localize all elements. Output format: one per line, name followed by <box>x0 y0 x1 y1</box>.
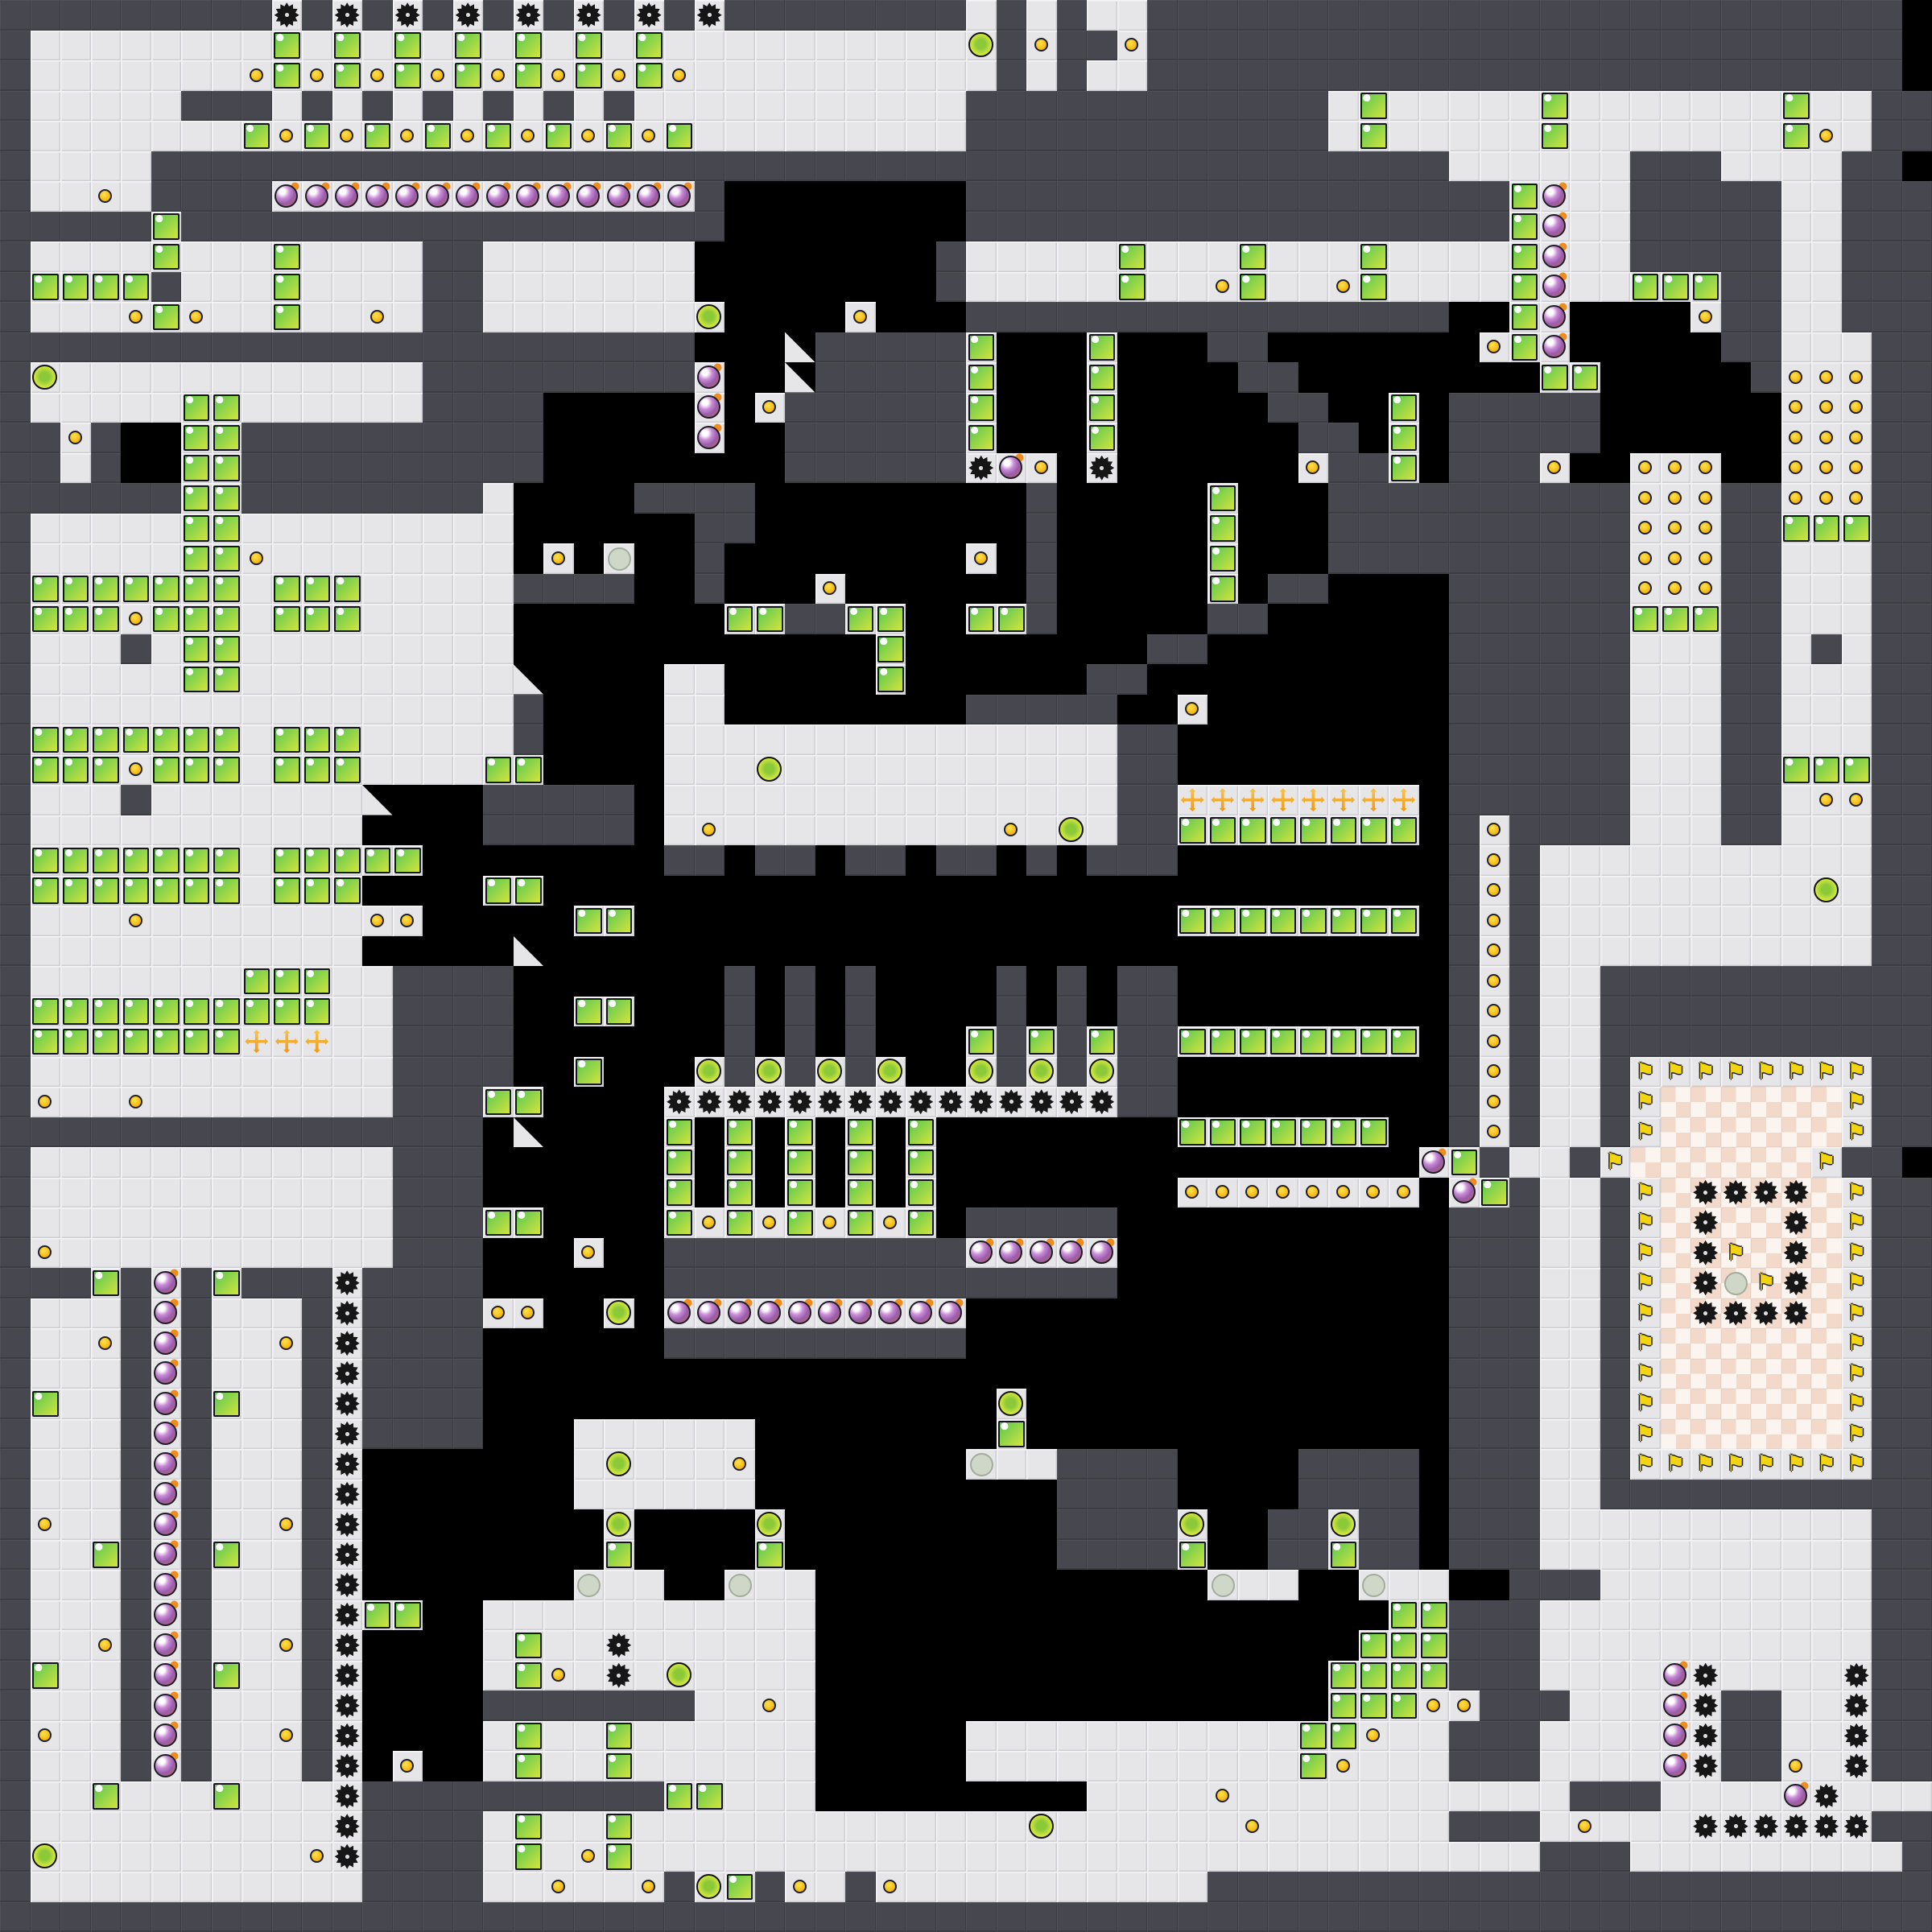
floor-tile <box>212 242 242 272</box>
floor-tile <box>785 1721 815 1752</box>
wall-tile <box>332 1117 363 1148</box>
wall-tile <box>1690 1480 1721 1510</box>
floor-tile <box>1661 1781 1691 1812</box>
green-block <box>1268 1026 1298 1057</box>
floor-tile <box>1570 242 1600 272</box>
green-block <box>91 1540 122 1571</box>
floor-tile <box>543 1751 574 1781</box>
floor-tile <box>1811 1721 1842 1752</box>
floor-tile <box>242 1872 272 1902</box>
wall-tile <box>1328 0 1359 31</box>
wall-tile <box>1359 181 1389 212</box>
floor-tile <box>1751 91 1781 122</box>
wall-tile <box>1872 543 1902 574</box>
wall-tile <box>997 0 1027 31</box>
coin-icon <box>755 1690 786 1721</box>
wall-tile <box>1600 543 1631 574</box>
wall-tile <box>604 212 634 242</box>
wall-tile <box>664 1268 695 1298</box>
floor-tile <box>1690 755 1721 786</box>
wall-tile <box>91 0 122 31</box>
wall-tile <box>151 181 182 212</box>
coin-icon <box>272 1328 303 1359</box>
wall-tile <box>1509 785 1540 815</box>
floor-tile <box>272 1057 303 1088</box>
wall-tile <box>181 1328 212 1359</box>
floor-tile <box>906 724 936 755</box>
floor-tile <box>121 181 151 212</box>
green-block <box>393 31 423 61</box>
coin-icon <box>362 302 393 332</box>
floor-tile <box>936 91 967 122</box>
floor-tile <box>1630 695 1661 725</box>
coin-icon <box>1781 483 1812 514</box>
floor-tile <box>1026 1842 1057 1872</box>
coin-icon <box>1781 453 1812 484</box>
floor-tile <box>785 785 815 815</box>
wall-tile <box>1147 121 1178 151</box>
checker-tile <box>1751 1117 1781 1148</box>
wall-tile <box>483 997 514 1027</box>
wall-tile <box>0 272 31 303</box>
wall-tile <box>1540 60 1571 91</box>
wall-tile <box>423 1298 453 1329</box>
floor-tile <box>91 31 122 61</box>
wall-tile <box>181 1268 212 1298</box>
wall-tile <box>1147 845 1178 876</box>
floor-tile <box>1751 1842 1781 1872</box>
wall-tile <box>1509 1449 1540 1480</box>
green-block <box>91 604 122 634</box>
floor-tile <box>1026 785 1057 815</box>
wall-tile <box>1057 181 1088 212</box>
floor-tile <box>1268 1570 1298 1600</box>
floor-tile <box>332 91 363 122</box>
wall-tile <box>1328 1902 1359 1932</box>
wall-tile <box>1872 91 1902 122</box>
floor-tile <box>1540 966 1571 997</box>
floor-tile <box>212 936 242 967</box>
floor-tile <box>724 1811 755 1842</box>
wall-tile <box>181 181 212 212</box>
floor-tile <box>815 31 846 61</box>
wall-tile <box>1026 574 1057 605</box>
floor-tile <box>242 1600 272 1631</box>
green-block <box>31 755 61 786</box>
coin-icon <box>514 1298 544 1329</box>
floor-tile <box>332 1087 363 1117</box>
wall-tile <box>966 91 997 122</box>
floor-tile <box>453 695 484 725</box>
floor-tile <box>60 906 91 936</box>
wall-tile <box>1207 181 1238 212</box>
wall-tile <box>0 1087 31 1117</box>
checker-tile <box>1811 1207 1842 1238</box>
floor-tile <box>876 31 906 61</box>
floor-tile <box>695 785 725 815</box>
floor-tile <box>1087 785 1117 815</box>
floor-tile <box>121 664 151 695</box>
wall-tile <box>1298 91 1329 122</box>
floor-tile <box>695 724 725 755</box>
floor-tile <box>785 1690 815 1721</box>
wall-tile <box>1902 332 1932 363</box>
saw-icon <box>997 1087 1027 1117</box>
saw-icon <box>332 1389 363 1419</box>
wall-tile <box>1600 966 1631 997</box>
wall-tile <box>1117 1902 1148 1932</box>
bomb-icon <box>815 1298 846 1329</box>
floor-tile <box>332 1147 363 1178</box>
coin-icon <box>1811 393 1842 423</box>
wall-tile <box>1842 272 1872 303</box>
green-block <box>1087 362 1117 393</box>
wall-tile <box>1509 755 1540 786</box>
green-block <box>272 574 303 605</box>
wall-tile <box>1872 1811 1902 1842</box>
floor-tile <box>724 1751 755 1781</box>
floor-tile <box>60 1178 91 1208</box>
wall-tile <box>1057 1207 1088 1238</box>
wall-tile <box>815 423 846 453</box>
floor-tile <box>1570 91 1600 122</box>
wall-tile <box>1147 151 1178 182</box>
floor-tile <box>483 1872 514 1902</box>
wall-tile <box>664 1902 695 1932</box>
wall-tile <box>1117 1480 1148 1510</box>
wall-tile <box>181 0 212 31</box>
coin-icon <box>393 121 423 151</box>
wall-tile <box>543 1902 574 1932</box>
floor-tile <box>695 1842 725 1872</box>
green-block <box>212 1268 242 1298</box>
wall-tile <box>1661 242 1691 272</box>
wall-tile <box>1268 1902 1298 1932</box>
floor-tile <box>1690 845 1721 876</box>
green-block <box>695 1781 725 1812</box>
wall-tile <box>0 604 31 634</box>
wall-tile <box>423 242 453 272</box>
wall-tile <box>1902 242 1932 272</box>
floor-tile <box>151 966 182 997</box>
green-block <box>604 997 634 1027</box>
saw-icon <box>876 1087 906 1117</box>
wall-tile <box>1902 1207 1932 1238</box>
wall-tile <box>1480 1480 1510 1510</box>
wall-tile <box>1480 1751 1510 1781</box>
bomb-icon <box>543 181 574 212</box>
coin-icon <box>1026 31 1057 61</box>
wall-tile <box>393 423 423 453</box>
floor-tile <box>121 1781 151 1812</box>
floor-tile <box>1328 1842 1359 1872</box>
wall-tile <box>815 1238 846 1269</box>
wall-tile <box>453 1298 484 1329</box>
green-block <box>60 997 91 1027</box>
wall-tile <box>815 1328 846 1359</box>
floor-tile <box>604 1872 634 1902</box>
floor-tile <box>1298 1781 1329 1812</box>
wall-tile <box>362 1117 393 1148</box>
floor-tile <box>242 1207 272 1238</box>
wall-tile <box>1721 60 1752 91</box>
wall-tile <box>1872 997 1902 1027</box>
wall-tile <box>423 453 453 484</box>
saw-icon <box>332 1328 363 1359</box>
move-cross-icon <box>1389 785 1419 815</box>
floor-tile <box>1690 1600 1721 1631</box>
level-map <box>0 0 1932 1932</box>
wall-tile <box>1751 242 1781 272</box>
wall-tile <box>1087 91 1117 122</box>
floor-tile <box>724 785 755 815</box>
wall-tile <box>302 1419 332 1450</box>
floor-tile <box>272 1419 303 1450</box>
green-block <box>212 483 242 514</box>
wall-tile <box>1842 212 1872 242</box>
bomb-icon <box>695 362 725 393</box>
floor-tile <box>242 1419 272 1450</box>
wall-tile <box>393 453 423 484</box>
floor-tile <box>815 1811 846 1842</box>
wall-tile <box>181 1600 212 1631</box>
green-block <box>423 121 453 151</box>
coin-icon <box>1630 574 1661 605</box>
wall-tile <box>0 453 31 484</box>
floor-tile <box>483 483 514 514</box>
coin-icon <box>1690 453 1721 484</box>
wall-tile <box>1811 1026 1842 1057</box>
wall-tile <box>1842 1872 1872 1902</box>
floor-tile <box>1540 1087 1571 1117</box>
wall-tile <box>1661 997 1691 1027</box>
green-block <box>845 1207 876 1238</box>
floor-tile <box>1661 1509 1691 1540</box>
floor-tile <box>1721 151 1752 182</box>
wall-tile <box>1057 1509 1088 1540</box>
green-block <box>181 997 212 1027</box>
wall-tile <box>1509 1661 1540 1691</box>
wall-tile <box>1268 574 1298 605</box>
wall-tile <box>1902 1751 1932 1781</box>
floor-tile <box>1811 543 1842 574</box>
floor-tile <box>31 1359 61 1389</box>
flag-icon <box>1600 1147 1631 1178</box>
wall-tile <box>1298 151 1329 182</box>
wall-tile <box>1057 91 1088 122</box>
green-block <box>212 1389 242 1419</box>
wall-tile <box>121 1721 151 1752</box>
coin-icon <box>393 906 423 936</box>
wall-tile <box>876 393 906 423</box>
coin-icon <box>1811 362 1842 393</box>
floor-tile <box>60 815 91 846</box>
bomb-icon <box>845 1298 876 1329</box>
floor-tile <box>755 1570 786 1600</box>
floor-tile <box>60 1600 91 1631</box>
wall-tile <box>574 785 605 815</box>
checker-tile <box>1721 1328 1752 1359</box>
wall-tile <box>362 1872 393 1902</box>
wall-tile <box>845 362 876 393</box>
wall-tile <box>1690 1026 1721 1057</box>
wall-tile <box>1449 1872 1480 1902</box>
floor-tile <box>1721 1540 1752 1571</box>
floor-tile <box>664 664 695 695</box>
wall-tile <box>423 1811 453 1842</box>
checker-tile <box>1811 1389 1842 1419</box>
wall-tile <box>1570 815 1600 846</box>
floor-tile <box>1570 272 1600 303</box>
green-block <box>483 1087 514 1117</box>
green-block <box>664 121 695 151</box>
floor-tile <box>60 60 91 91</box>
floor-tile <box>332 1238 363 1269</box>
coin-icon <box>91 181 122 212</box>
green-block <box>332 755 363 786</box>
coin-icon <box>724 1449 755 1480</box>
floor-tile <box>423 543 453 574</box>
floor-tile <box>1178 1721 1208 1752</box>
floor-tile <box>242 1238 272 1269</box>
wall-tile <box>272 212 303 242</box>
floor-tile <box>272 1811 303 1842</box>
wall-tile <box>1178 1902 1208 1932</box>
floor-tile <box>695 1661 725 1691</box>
wall-tile <box>1540 483 1571 514</box>
orb-icon <box>1328 1509 1359 1540</box>
green-block <box>785 1207 815 1238</box>
floor-tile <box>1842 1509 1872 1540</box>
wall-tile <box>1449 1207 1480 1238</box>
green-block <box>1238 272 1269 303</box>
floor-tile <box>212 1449 242 1480</box>
green-block <box>1298 1026 1329 1057</box>
saw-icon <box>332 1690 363 1721</box>
wall-tile <box>1480 393 1510 423</box>
wall-tile <box>1872 1147 1902 1178</box>
wall-tile <box>1359 0 1389 31</box>
wall-tile <box>121 332 151 363</box>
wall-tile <box>362 151 393 182</box>
wall-tile <box>1359 453 1389 484</box>
wall-tile <box>1751 574 1781 605</box>
wall-tile <box>906 393 936 423</box>
coin-icon <box>1207 272 1238 303</box>
floor-tile <box>1721 91 1752 122</box>
floor-tile <box>906 1811 936 1842</box>
wall-tile <box>1298 393 1329 423</box>
wall-tile <box>1207 1872 1238 1902</box>
floor-tile <box>1600 151 1631 182</box>
wall-tile <box>1509 1207 1540 1238</box>
wall-tile <box>1147 302 1178 332</box>
wall-tile <box>423 1902 453 1932</box>
green-block <box>785 1117 815 1148</box>
floor-tile <box>181 1178 212 1208</box>
wall-tile <box>724 1057 755 1088</box>
wall-tile <box>1509 1480 1540 1510</box>
wall-tile <box>1902 302 1932 332</box>
wall-tile <box>1117 1026 1148 1057</box>
wall-tile <box>31 453 61 484</box>
floor-tile <box>272 1781 303 1812</box>
floor-tile <box>393 393 423 423</box>
wall-tile <box>1570 60 1600 91</box>
wall-tile <box>876 1902 906 1932</box>
floor-tile <box>1540 876 1571 906</box>
green-block <box>543 121 574 151</box>
checker-tile <box>1721 1087 1752 1117</box>
floor-tile <box>151 60 182 91</box>
wall-tile <box>423 1268 453 1298</box>
wall-tile <box>1449 453 1480 484</box>
wall-tile <box>121 1117 151 1148</box>
wall-tile <box>1359 1872 1389 1902</box>
orb-icon <box>695 1057 725 1088</box>
floor-tile <box>91 1661 122 1691</box>
floor-tile <box>1238 1570 1269 1600</box>
floor-tile <box>695 1480 725 1510</box>
green-block <box>514 1811 544 1842</box>
wall-tile <box>664 845 695 876</box>
wall-tile <box>1509 1359 1540 1389</box>
wall-tile <box>60 1117 91 1148</box>
checker-tile <box>1661 1238 1691 1269</box>
wall-tile <box>604 1781 634 1812</box>
floor-tile <box>181 1087 212 1117</box>
green-block <box>785 1147 815 1178</box>
floor-tile <box>242 1781 272 1812</box>
green-block <box>906 1178 936 1208</box>
checker-tile <box>1721 1389 1752 1419</box>
wall-tile <box>1872 1449 1902 1480</box>
coin-icon <box>1480 332 1510 363</box>
green-block <box>91 876 122 906</box>
floor-tile <box>1540 1207 1571 1238</box>
green-block <box>1540 362 1571 393</box>
floor-tile <box>60 514 91 544</box>
wall-tile <box>1781 31 1812 61</box>
wall-tile <box>966 1268 997 1298</box>
floor-tile <box>1721 1781 1752 1812</box>
wall-tile <box>453 1238 484 1269</box>
floor-tile <box>31 1328 61 1359</box>
green-block <box>151 997 182 1027</box>
wall-tile <box>453 1057 484 1088</box>
saw-icon <box>393 0 423 31</box>
wall-tile <box>1872 1600 1902 1631</box>
wall-tile <box>362 1389 393 1419</box>
wall-tile <box>1721 1902 1752 1932</box>
green-block <box>785 1178 815 1208</box>
wall-tile <box>1480 724 1510 755</box>
green-block <box>181 755 212 786</box>
wall-tile <box>695 1268 725 1298</box>
wall-tile <box>724 1268 755 1298</box>
wall-tile <box>1751 1480 1781 1510</box>
wall-tile <box>121 1630 151 1661</box>
wall-tile <box>453 242 484 272</box>
coin-icon <box>423 60 453 91</box>
wall-tile <box>1087 212 1117 242</box>
floor-tile <box>1178 242 1208 272</box>
floor-tile <box>1480 242 1510 272</box>
floor-tile <box>876 91 906 122</box>
coin-icon <box>1781 423 1812 453</box>
floor-tile <box>514 1600 544 1631</box>
wall-tile <box>695 574 725 605</box>
